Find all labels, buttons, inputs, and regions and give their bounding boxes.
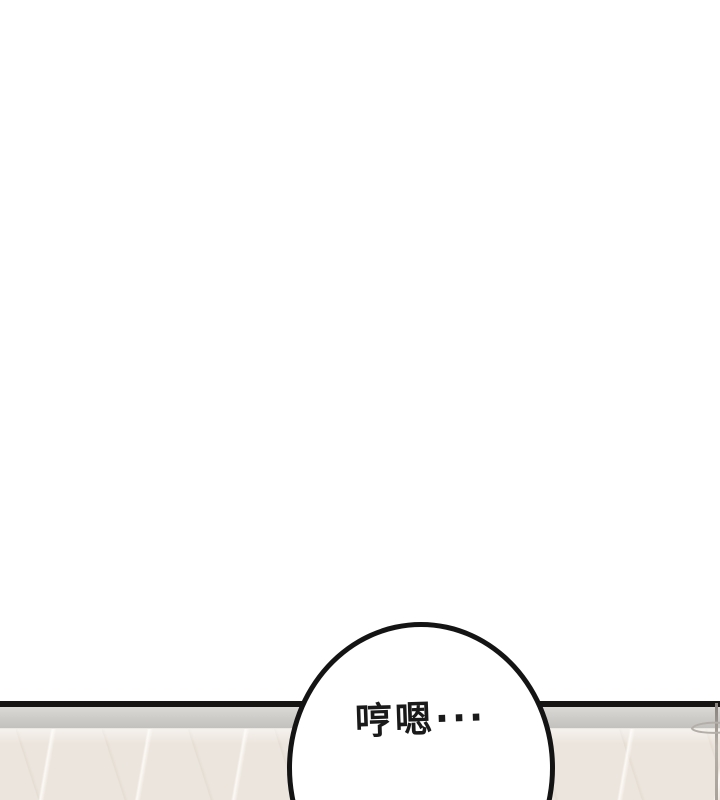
right-corner-edge-line [715, 703, 718, 800]
dialogue-text: 哼嗯··· [355, 696, 488, 744]
dialogue: 哼嗯··· [355, 697, 488, 744]
wall-background [0, 0, 720, 701]
comic-panel: 哼嗯··· [0, 0, 720, 800]
floor-fixture-arc [682, 719, 720, 737]
fixture-arc-path [692, 723, 720, 733]
